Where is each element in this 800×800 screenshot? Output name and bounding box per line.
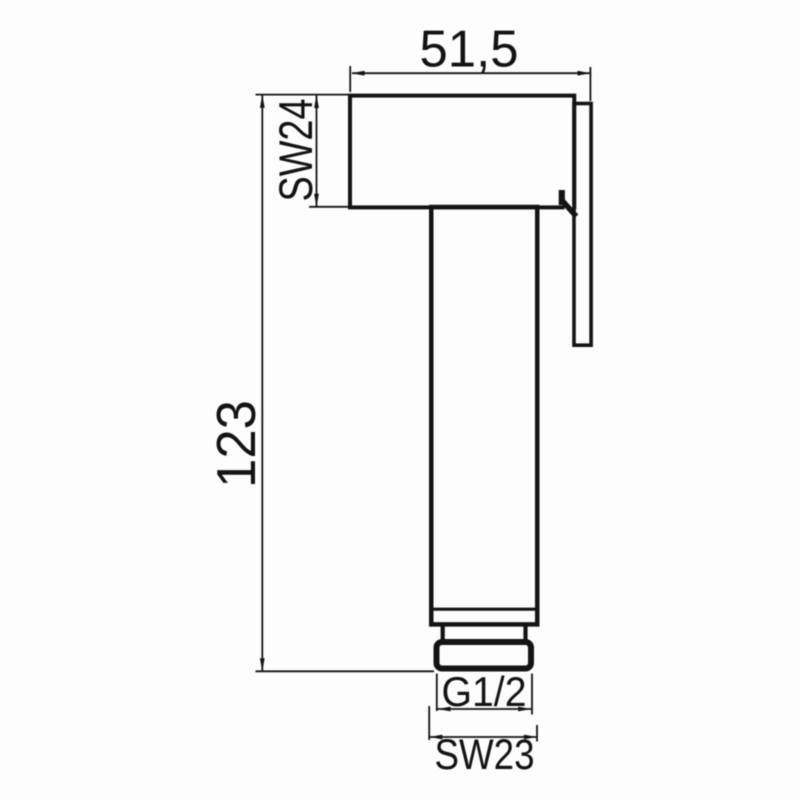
- svg-text:SW23: SW23: [435, 732, 535, 779]
- svg-text:51,5: 51,5: [420, 21, 519, 79]
- svg-text:123: 123: [205, 400, 267, 488]
- svg-text:G1/2: G1/2: [442, 668, 527, 715]
- svg-text:SW24: SW24: [269, 99, 322, 202]
